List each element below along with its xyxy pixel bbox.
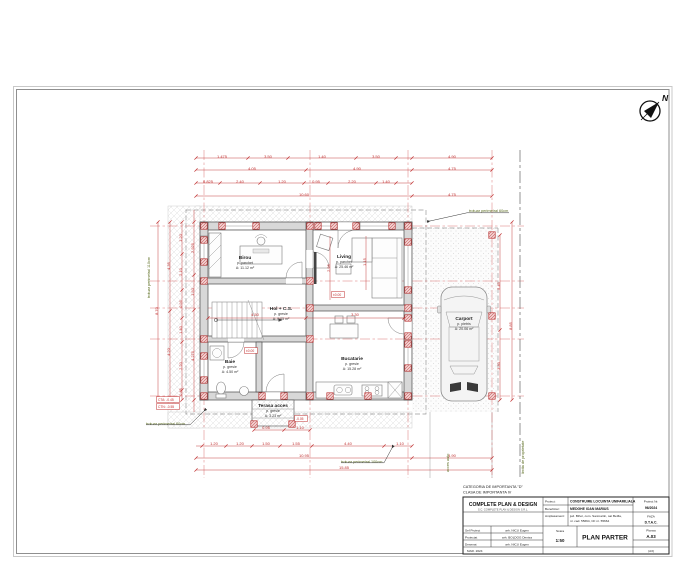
site-value-line2: nr. cad. 55664, CF nr. 55664 xyxy=(570,519,609,523)
room-area: A: 11.12 m² xyxy=(236,266,255,270)
dimension-label: 1.40 xyxy=(382,179,391,184)
dimension-label: 5.45 xyxy=(496,281,501,290)
dimension-label: 1.20 xyxy=(210,441,219,446)
column-marker xyxy=(307,278,313,284)
column-marker xyxy=(405,305,411,311)
column-marker xyxy=(489,393,495,399)
dimension-label: 2.10 xyxy=(178,267,183,276)
dimension-label: 1.10 xyxy=(296,425,305,430)
dimension-label: 4.40 xyxy=(344,441,353,446)
perimeter-note: limita de proprietate xyxy=(521,441,525,474)
drawing-title: PLAN PARTER xyxy=(582,535,628,542)
room-area: A: 4.50 m² xyxy=(222,370,239,374)
column-marker xyxy=(281,393,287,399)
project-value: CONSTRUIRE LOCUINTA UNIFAMILIALA xyxy=(570,500,636,504)
dimension-label: 8.85 xyxy=(508,321,513,330)
dimension-label: 0.825 xyxy=(203,179,214,184)
staff-name-0: arh. NICU Eugen xyxy=(505,529,529,533)
client-value: MEDGHE IOAN MARIUS xyxy=(570,507,609,511)
room-floor: p. pietris xyxy=(457,322,471,326)
sheet-value: A.03 xyxy=(646,534,656,539)
column-marker xyxy=(307,393,313,399)
room-floor: p. gresie xyxy=(345,362,359,366)
column-marker xyxy=(307,223,313,229)
column-marker xyxy=(327,393,333,399)
dimension-label: 0.85 xyxy=(178,387,183,396)
date-value: MAR. 2024 xyxy=(467,549,483,553)
room-floor: p. parchet xyxy=(237,261,253,265)
client-label: Beneficiar: xyxy=(545,507,560,511)
column-marker xyxy=(389,223,395,229)
column-marker xyxy=(201,223,207,229)
column-marker xyxy=(259,393,265,399)
dimension-label: 4.90 xyxy=(353,166,362,171)
project-label: Proiect: xyxy=(545,500,556,504)
column-marker xyxy=(201,278,207,284)
dimension-label: 10.60 xyxy=(299,192,310,197)
room-floor: p. gresie xyxy=(266,409,280,413)
staff-role-2: Desenat xyxy=(465,543,477,547)
dimension-label: 1.40 xyxy=(318,154,327,159)
dimension-label: 4.275 xyxy=(190,350,195,361)
room-floor: p. gresie xyxy=(274,312,288,316)
dimension-label: 2.95 xyxy=(326,263,331,272)
dimension-label: 2.20 xyxy=(348,179,357,184)
site-value-line1: jud. Bihor, com. Sanmartin, sat Betfia, xyxy=(569,514,622,518)
staff-role-1: Proiectat xyxy=(465,536,477,540)
perimeter-note: trotuar perimetral 60cm xyxy=(146,422,185,426)
phase-value: D.T.A.C. xyxy=(645,521,658,525)
dimension-label: 2.925 xyxy=(190,242,195,253)
staff-role-0: Sef Proiect xyxy=(465,529,480,533)
firm-subtitle: S.C. COMPLETE PLAN & DESIGN S.R.L. xyxy=(478,508,529,512)
dimension-label: 3.50 xyxy=(264,154,273,159)
perimeter-note: trotuar perimetral 110cm xyxy=(147,257,151,298)
perimeter-note: trotuar perimetral 100cm xyxy=(341,460,382,464)
staff-name-2: arh. NICU Eugen xyxy=(505,543,529,547)
dimension-label: 0.95 xyxy=(262,425,271,430)
dimension-label: 1.20 xyxy=(278,179,287,184)
dimension-label: 4.50 xyxy=(251,312,260,317)
dimension-label: 3.50 xyxy=(372,154,381,159)
column-marker xyxy=(201,259,207,265)
dimension-label: 2.40 xyxy=(236,179,245,184)
column-marker xyxy=(405,223,411,229)
sheet-label: Plansa xyxy=(646,529,656,533)
dimension-label: 1.40 xyxy=(178,325,183,334)
room-area: A: 3.23 m² xyxy=(265,414,282,418)
level-marker: CTN: -0.55 xyxy=(158,405,174,409)
north-label: N xyxy=(662,93,669,103)
project-no-value: 96/2024 xyxy=(645,506,657,510)
column-marker xyxy=(489,313,495,319)
column-marker xyxy=(253,223,259,229)
column-marker xyxy=(405,287,411,293)
dimension-label: 1.20 xyxy=(178,233,183,242)
drawing-sheet-page: 1.4753.501.403.504.904.054.904.750.8252.… xyxy=(0,0,680,563)
project-no-label: Proiect Nr. xyxy=(644,500,659,504)
column-marker xyxy=(405,365,411,371)
dimension-label: 2.20 xyxy=(178,361,183,370)
column-marker xyxy=(405,393,411,399)
column-marker xyxy=(315,223,321,229)
level-marker: ±0.00 xyxy=(333,293,341,297)
dimension-label: 10.95 xyxy=(299,453,310,458)
room-area: A: 9.05 m² xyxy=(273,317,290,321)
floor-plan-svg: 1.4753.501.403.504.904.054.904.750.8252.… xyxy=(0,0,680,563)
dimension-label: 1.15 xyxy=(362,257,367,266)
category-line-1: CATEGORIA DE IMPORTANTA "D" xyxy=(463,485,523,489)
room-floor: p. parchet xyxy=(336,260,352,264)
staff-name-1: arh. BOLDOG Denisa xyxy=(502,536,532,540)
firm-name: COMPLETE PLAN & DESIGN xyxy=(469,502,538,508)
column-marker xyxy=(307,305,313,311)
column-marker xyxy=(489,232,495,238)
dimension-label: 1.50 xyxy=(190,287,195,296)
column-marker xyxy=(289,421,295,427)
column-marker xyxy=(201,237,207,243)
dimension-label: 1.55 xyxy=(292,441,301,446)
dimension-label: 15.85 xyxy=(339,465,350,470)
column-marker xyxy=(405,239,411,245)
room-area: A: 20.06 m² xyxy=(455,327,474,331)
room-floor: p. gresie xyxy=(223,365,237,369)
column-marker xyxy=(353,223,359,229)
site-label: Amplasament: xyxy=(545,514,565,518)
dimension-label: 8.70 xyxy=(154,306,159,315)
scale-label: Scara xyxy=(556,529,564,533)
level-marker: -0.05 xyxy=(296,417,304,421)
dimension-label: 4.35 xyxy=(166,261,171,270)
room-area: A: 25.46 m² xyxy=(335,265,354,269)
column-marker xyxy=(331,223,337,229)
column-marker xyxy=(201,353,207,359)
dimension-label: 0.95 xyxy=(312,179,321,184)
column-marker xyxy=(307,336,313,342)
paper-format: (A3) xyxy=(648,549,654,553)
scale-value: 1:50 xyxy=(556,538,565,543)
dimension-label: 4.20 xyxy=(166,347,171,356)
dimension-label: 1.20 xyxy=(236,441,245,446)
column-marker xyxy=(219,223,225,229)
dimension-label: 3.30 xyxy=(351,312,360,317)
column-marker xyxy=(405,341,411,347)
perimeter-note: acces auto xyxy=(446,454,450,472)
phase-label: FAZA xyxy=(647,515,656,519)
dimension-label: 1.10 xyxy=(396,441,405,446)
dimension-label: 1.50 xyxy=(262,441,271,446)
dimension-label: 1.475 xyxy=(217,154,228,159)
car xyxy=(438,287,491,401)
perimeter-note: trotuar perimetral 60cm xyxy=(469,209,508,213)
level-marker: CTA: -0.45 xyxy=(158,398,174,402)
dimension-label: 4.75 xyxy=(448,192,457,197)
room-area: A: 15.28 m² xyxy=(343,367,362,371)
column-marker xyxy=(405,315,411,321)
column-marker xyxy=(365,393,371,399)
level-marker: ±0.00 xyxy=(246,349,254,353)
dimension-label: 4.05 xyxy=(248,166,257,171)
dimension-label: 3.30 xyxy=(496,361,501,370)
dimension-label: 4.75 xyxy=(448,166,457,171)
column-marker xyxy=(201,393,207,399)
dimension-label: 0.95 xyxy=(178,299,183,308)
column-marker xyxy=(201,377,207,383)
dimension-label: 4.90 xyxy=(448,154,457,159)
column-marker xyxy=(201,336,207,342)
column-marker xyxy=(405,333,411,339)
category-line-2: CLASA DE IMPORTANTA IV xyxy=(463,491,512,495)
column-marker xyxy=(251,421,257,427)
